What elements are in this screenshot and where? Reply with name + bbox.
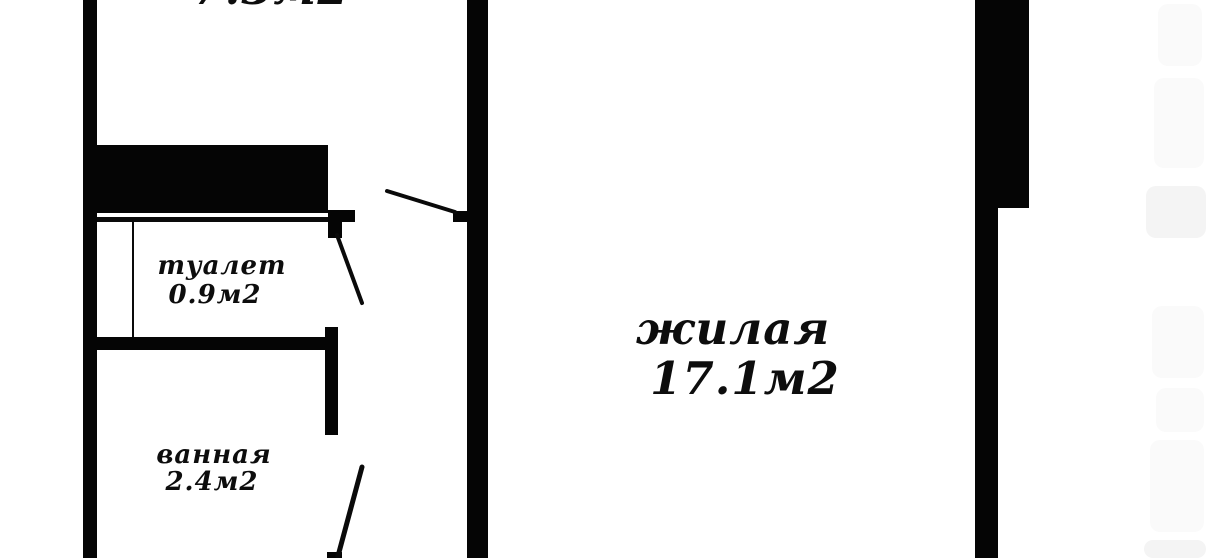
wall-right-thin-lower: [975, 207, 998, 558]
toilet-left-partition-line: [132, 222, 134, 338]
toilet-area-label: 0.9м2: [140, 281, 290, 309]
living-name-label: жилая: [633, 306, 833, 352]
watermark-blob: [1150, 440, 1204, 532]
watermark-blob: [1152, 306, 1204, 378]
bathroom-right-wall: [325, 327, 338, 435]
watermark-blob: [1158, 4, 1202, 66]
bathroom-area-label: 2.4м2: [137, 468, 287, 496]
toilet-door-swing-line: [337, 235, 362, 303]
toilet-name-label: туалет: [147, 252, 297, 280]
shaft-block: [97, 145, 328, 213]
living-area-label: 17.1м2: [625, 356, 865, 402]
floor-plan: 7.3м2 туалет 0.9м2 ванная 2.4м2 жилая 17…: [0, 0, 1206, 558]
living-door-jamb: [453, 211, 467, 222]
living-door-swing-line: [387, 191, 455, 212]
wall-central: [467, 0, 488, 558]
bathroom-name-label: ванная: [139, 441, 289, 469]
top-room-area-label: 7.3м2: [191, 0, 351, 12]
corridor-wall-stub: [328, 210, 355, 222]
watermark-blob: [1154, 78, 1204, 168]
toilet-door-jamb: [328, 222, 342, 238]
wall-left-exterior: [83, 0, 97, 558]
watermark-blob: [1156, 388, 1204, 432]
bathroom-top-wall: [97, 337, 325, 350]
bathroom-door-bottom-stub: [327, 552, 342, 558]
watermark-blob: [1144, 540, 1206, 558]
watermark-blob: [1146, 186, 1206, 238]
bathroom-door-swing-line: [338, 467, 362, 556]
wall-right-thick-upper: [975, 0, 1029, 208]
